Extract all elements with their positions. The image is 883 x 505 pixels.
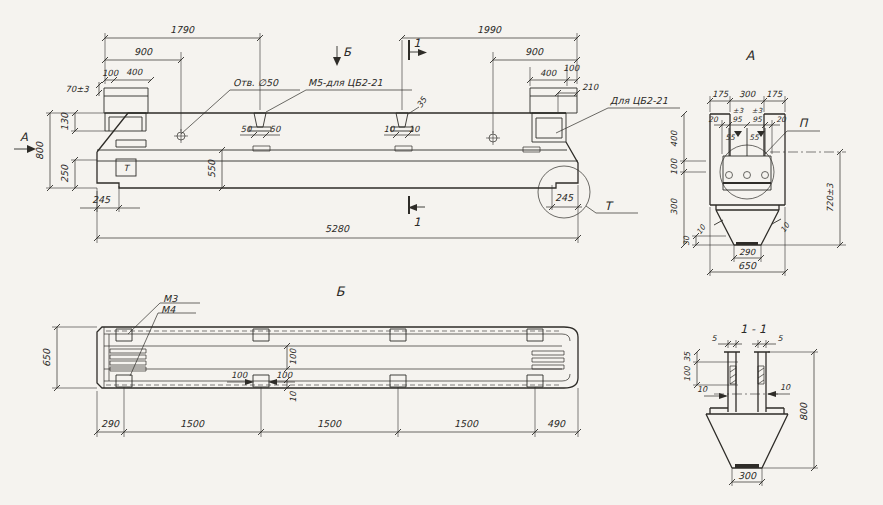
hole-50-left xyxy=(174,129,188,143)
dim-650-a: 650 xyxy=(738,260,757,271)
dim-650-plan: 650 xyxy=(41,348,52,367)
dim-250: 250 xyxy=(59,164,70,183)
dim-400-right: 400 xyxy=(540,68,558,78)
dim-290-plan: 290 xyxy=(101,418,120,429)
view-arrow-b: Б xyxy=(333,45,352,66)
dim-300-top: 300 xyxy=(739,89,757,99)
arrow-10-right xyxy=(767,391,776,397)
section-a-title: А xyxy=(746,48,755,63)
view-arrow-a-label: А xyxy=(20,130,28,144)
dim-300-a: 300 xyxy=(669,197,679,215)
label-for-cb2-21: Для ЦБ2-21 xyxy=(610,95,668,106)
section-view-a: А П 175 300 175 20 95 95 20 ±3 ±3 55 55 … xyxy=(669,48,846,276)
dim-210: 210 xyxy=(582,82,600,92)
section-11-hatch xyxy=(730,366,764,384)
plan-right-bars xyxy=(532,351,564,369)
dim-720: 720±3 xyxy=(825,183,835,212)
dim-550: 550 xyxy=(206,159,217,178)
dim-20-l: 20 xyxy=(708,115,719,124)
dim-300-11: 300 xyxy=(738,470,757,481)
dim-10-11-l: 10 xyxy=(697,385,708,394)
dim-50-l: 50 xyxy=(241,124,253,134)
view-arrow-a: А xyxy=(14,130,36,153)
section-a-callout: П xyxy=(799,116,809,130)
plan-view-b: Б М3 М4 650 290 1500 1500 1500 490 100 1… xyxy=(41,284,581,437)
dim-1990: 1990 xyxy=(477,24,502,35)
dim-245-right: 245 xyxy=(555,192,574,203)
dim-55-l: 55 xyxy=(725,133,736,142)
dim-10-foot-r: 10 xyxy=(779,220,793,234)
dim-50-r: 50 xyxy=(270,124,282,134)
detail-callout-t: Т xyxy=(604,199,614,213)
plate-hole-3 xyxy=(762,172,769,179)
dim-100-a: 100 xyxy=(669,157,679,175)
dim-100-11: 100 xyxy=(683,365,692,381)
section-a-extension-lines xyxy=(680,96,846,276)
section-a-callout-leader xyxy=(765,131,820,154)
label-hole-50: Отв. ∅50 xyxy=(233,77,279,88)
dim-70: 70±3 xyxy=(65,84,89,94)
plan-extension-lines xyxy=(52,327,578,437)
dim-245-left: 245 xyxy=(92,194,111,205)
dim-100-left: 100 xyxy=(102,68,120,78)
view-b-title: Б xyxy=(336,284,346,299)
section-11-dimension-lines xyxy=(697,344,814,482)
dim-800-11: 800 xyxy=(798,402,809,421)
dim-95-r: 95 xyxy=(752,115,763,124)
dim-10-foot-l: 10 xyxy=(695,222,709,236)
dim-5-r: 5 xyxy=(777,334,783,343)
dim-35-11: 35 xyxy=(683,351,692,362)
plate-hole-2 xyxy=(744,172,751,179)
beam-drawing: Т А Б 1 1 xyxy=(0,0,883,505)
dim-290-a: 290 xyxy=(739,247,757,257)
dim-1500-b: 1500 xyxy=(317,418,342,429)
drawing-sheet: Т А Б 1 1 xyxy=(0,0,883,505)
dim-900-right: 900 xyxy=(525,46,544,57)
plan-inner-lines xyxy=(104,327,570,388)
dim-10-11-r: 10 xyxy=(780,383,791,392)
dim-100-right: 100 xyxy=(563,63,581,73)
dim-10-r: 10 xyxy=(409,124,421,134)
dim-800: 800 xyxy=(34,141,45,160)
dim-20-r: 20 xyxy=(776,115,787,124)
cut-mark-1-top: 1 xyxy=(409,36,427,60)
label-anchor-m5: М5-для ЦБ2-21 xyxy=(308,77,383,88)
dim-35: 35 xyxy=(414,95,429,110)
dim-130: 130 xyxy=(59,112,70,131)
dimension-ticks xyxy=(47,35,581,241)
hole-50-right xyxy=(486,131,500,145)
dim-1500-a: 1500 xyxy=(180,418,205,429)
section-11-sole xyxy=(735,464,759,468)
leader-lines xyxy=(181,90,680,213)
cut-mark-1-bottom: 1 xyxy=(408,196,425,229)
section-a-sole xyxy=(736,242,758,245)
cut-mark-1-bottom-label: 1 xyxy=(413,215,420,229)
dim-10-l: 10 xyxy=(384,124,396,134)
plan-dimension-lines xyxy=(57,327,578,432)
left-support xyxy=(104,88,148,147)
dim-55-r: 55 xyxy=(749,133,760,142)
dim-1500-c: 1500 xyxy=(454,418,479,429)
dim-5280: 5280 xyxy=(325,223,350,234)
label-m4: М4 xyxy=(161,304,176,315)
recess-marks xyxy=(253,146,540,152)
section-11-walls xyxy=(706,352,788,468)
dim-10-mid: 10 xyxy=(288,390,298,402)
plate-hole-1 xyxy=(726,172,733,179)
plan-hidden-lines xyxy=(106,331,560,385)
label-m3: М3 xyxy=(163,293,178,304)
dim-30-a: 30 xyxy=(682,235,691,246)
right-support xyxy=(530,88,577,142)
dim-900-left: 900 xyxy=(134,46,153,57)
tol-95-l: ±3 xyxy=(733,107,744,115)
section-a-ticks xyxy=(681,98,843,275)
dim-100-mid-v: 100 xyxy=(288,347,298,365)
dim-5-l: 5 xyxy=(711,334,717,343)
beam-outline xyxy=(97,113,578,188)
main-elevation-view: Т А Б 1 1 xyxy=(14,24,680,243)
dim-175-l: 175 xyxy=(712,89,729,99)
plan-outline xyxy=(97,327,578,388)
plan-studs xyxy=(116,329,543,387)
beam-inner-lines xyxy=(97,150,578,161)
mark-box-label: Т xyxy=(123,163,130,173)
dim-100-mid-r: 100 xyxy=(276,370,294,380)
dim-175-r: 175 xyxy=(766,89,783,99)
dim-490: 490 xyxy=(547,418,566,429)
section-11-title: 1 - 1 xyxy=(740,322,766,336)
tol-95-r: ±3 xyxy=(752,107,763,115)
dim-400-left: 400 xyxy=(126,67,144,77)
section-1-1-view: 1 - 1 5 5 35 100 10 10 800 300 xyxy=(683,322,818,486)
dim-100-mid-l: 100 xyxy=(231,370,249,380)
dim-95-l: 95 xyxy=(732,115,743,124)
section-a-dimension-lines xyxy=(684,101,840,272)
view-arrow-b-label: Б xyxy=(343,45,352,59)
dim-400-a: 400 xyxy=(669,129,679,147)
dim-1790: 1790 xyxy=(170,24,195,35)
cut-mark-1-top-label: 1 xyxy=(413,36,420,50)
